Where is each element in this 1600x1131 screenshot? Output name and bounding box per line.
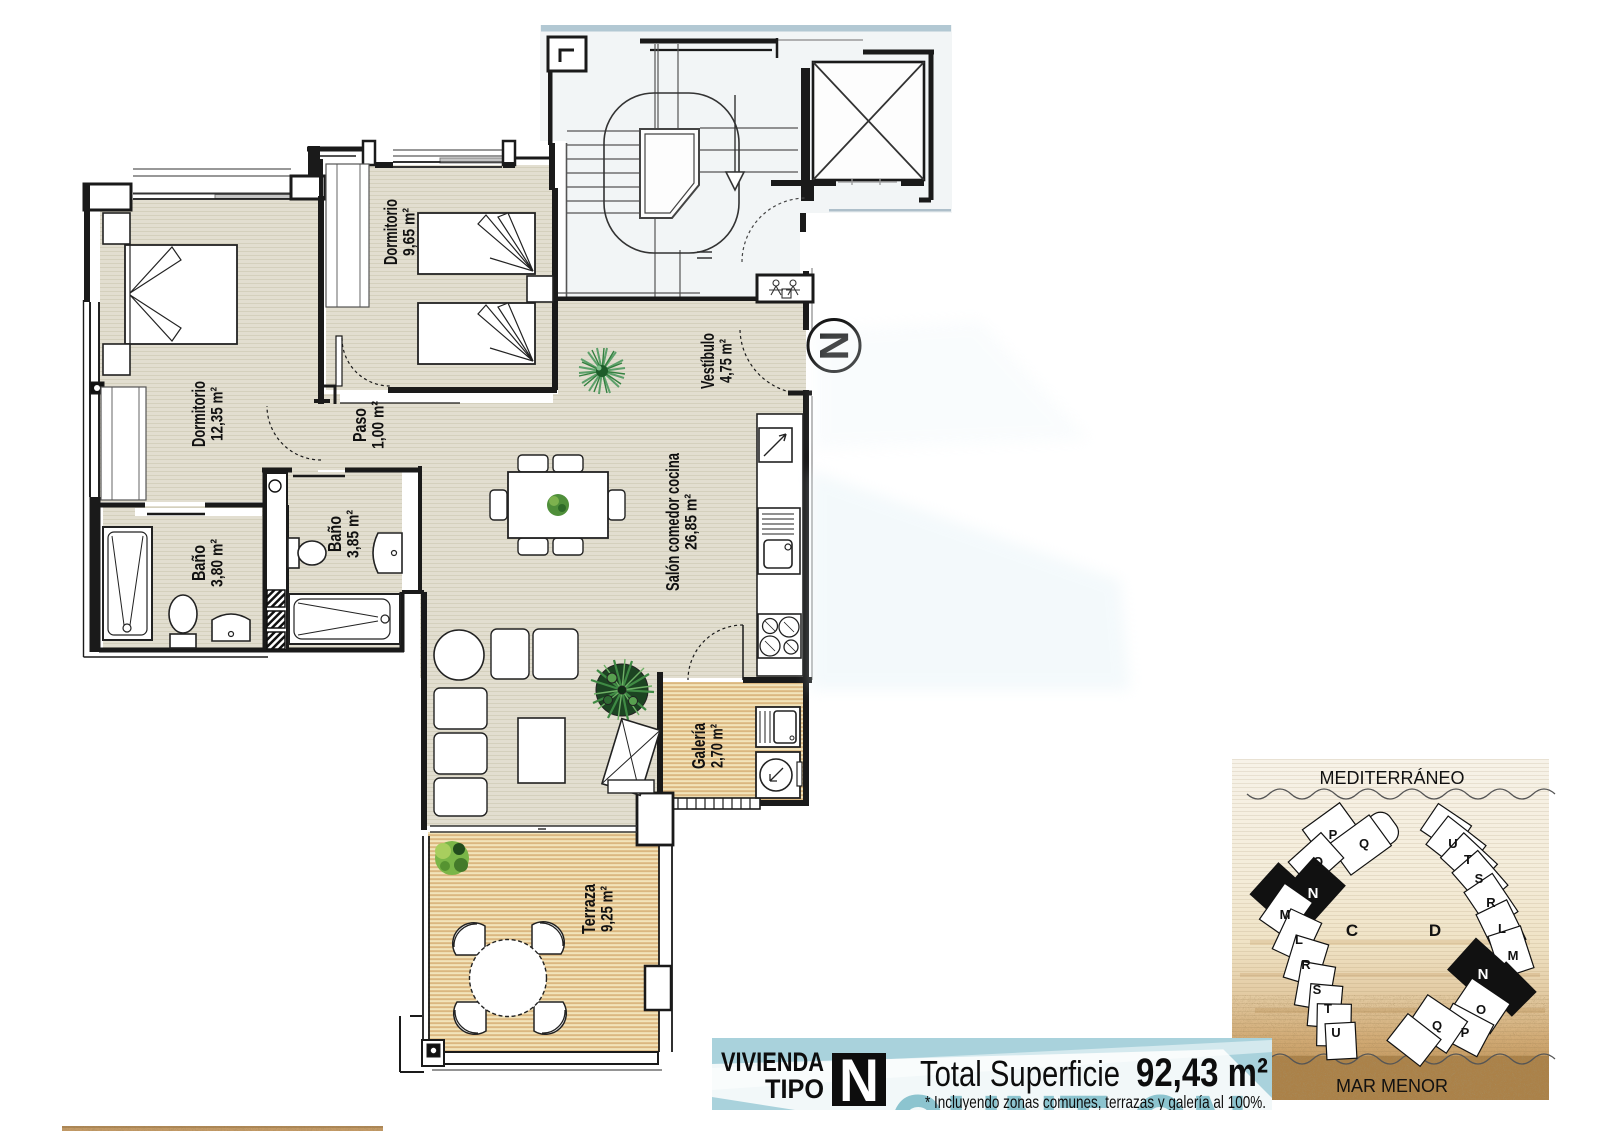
- svg-text:U: U: [1331, 1025, 1340, 1040]
- svg-text:M: M: [1508, 948, 1519, 963]
- svg-text:Q: Q: [1432, 1018, 1442, 1033]
- svg-text:P: P: [1329, 827, 1338, 842]
- svg-text:MAR MENOR: MAR MENOR: [1336, 1076, 1448, 1096]
- svg-text:L: L: [1498, 921, 1506, 936]
- svg-text:S: S: [1475, 871, 1484, 886]
- svg-text:N: N: [839, 1047, 879, 1114]
- svg-text:T: T: [1464, 852, 1472, 867]
- svg-text:S: S: [1313, 982, 1322, 997]
- svg-text:Baño: Baño: [189, 545, 209, 581]
- svg-text:92,43 m²: 92,43 m²: [1136, 1051, 1268, 1095]
- svg-text:R: R: [1486, 895, 1496, 910]
- svg-text:Baño: Baño: [325, 516, 345, 552]
- svg-text:4,75 m²: 4,75 m²: [718, 339, 736, 383]
- svg-text:1,00 m²: 1,00 m²: [370, 401, 388, 449]
- svg-text:C: C: [1346, 921, 1358, 940]
- svg-text:M: M: [1280, 907, 1291, 922]
- svg-text:L: L: [1295, 932, 1303, 947]
- svg-text:Dormitorio: Dormitorio: [381, 199, 401, 265]
- svg-text:Vestíbulo: Vestíbulo: [698, 333, 718, 389]
- svg-text:Galería: Galería: [689, 722, 709, 769]
- svg-text:3,85 m²: 3,85 m²: [345, 510, 363, 558]
- svg-text:VIVIENDA: VIVIENDA: [721, 1047, 824, 1077]
- svg-text:MEDITERRÁNEO: MEDITERRÁNEO: [1319, 768, 1464, 788]
- svg-text:O: O: [1313, 854, 1323, 869]
- svg-text:2,70 m²: 2,70 m²: [709, 724, 727, 768]
- svg-text:R: R: [1301, 957, 1311, 972]
- svg-text:Salón comedor cocina: Salón comedor cocina: [663, 452, 683, 591]
- svg-text:26,85 m²: 26,85 m²: [683, 494, 701, 550]
- svg-text:Paso: Paso: [350, 408, 370, 442]
- svg-text:N: N: [1478, 966, 1489, 983]
- svg-text:9,25 m²: 9,25 m²: [599, 886, 617, 932]
- svg-text:9,65 m²: 9,65 m²: [401, 208, 419, 256]
- svg-text:P: P: [1461, 1025, 1470, 1040]
- svg-text:D: D: [1429, 921, 1441, 940]
- svg-text:* Incluyendo zonas comunes, te: * Incluyendo zonas comunes, terrazas y g…: [925, 1092, 1266, 1112]
- svg-text:TIPO: TIPO: [765, 1074, 824, 1104]
- svg-text:Total Superficie: Total Superficie: [920, 1053, 1120, 1094]
- svg-text:Terraza: Terraza: [579, 883, 599, 934]
- svg-text:Dormitorio: Dormitorio: [189, 381, 209, 447]
- svg-text:12,35 m²: 12,35 m²: [209, 387, 227, 441]
- svg-text:N: N: [1308, 885, 1319, 902]
- svg-text:T: T: [1324, 1001, 1332, 1016]
- svg-text:O: O: [1476, 1002, 1486, 1017]
- svg-text:3,80 m²: 3,80 m²: [209, 539, 227, 587]
- svg-text:Q: Q: [1359, 836, 1369, 851]
- svg-text:U: U: [1448, 836, 1457, 851]
